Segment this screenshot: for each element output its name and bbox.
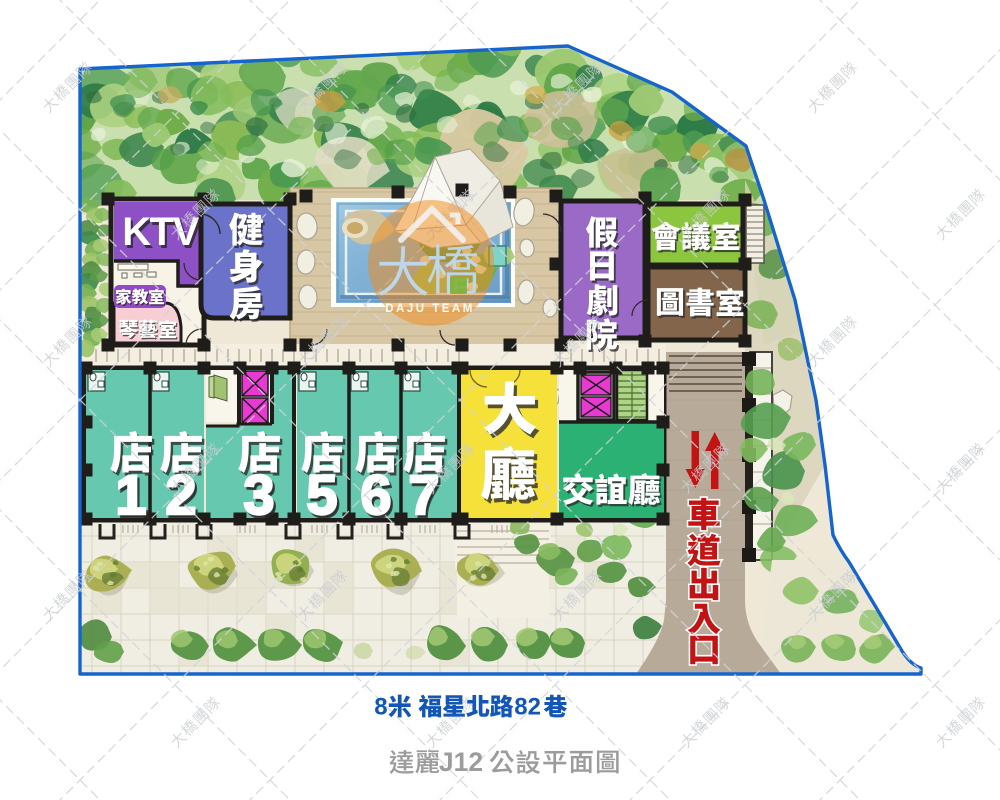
svg-text:82: 82: [514, 694, 541, 721]
svg-text:7: 7: [408, 463, 439, 526]
svg-text:3: 3: [243, 463, 274, 526]
svg-text:5: 5: [306, 463, 337, 526]
svg-text:1: 1: [115, 463, 146, 526]
svg-text:DAJU TEAM: DAJU TEAM: [385, 303, 475, 315]
svg-text:J12: J12: [439, 747, 483, 777]
svg-text:8: 8: [374, 694, 387, 721]
svg-text:KTV: KTV: [122, 210, 199, 254]
